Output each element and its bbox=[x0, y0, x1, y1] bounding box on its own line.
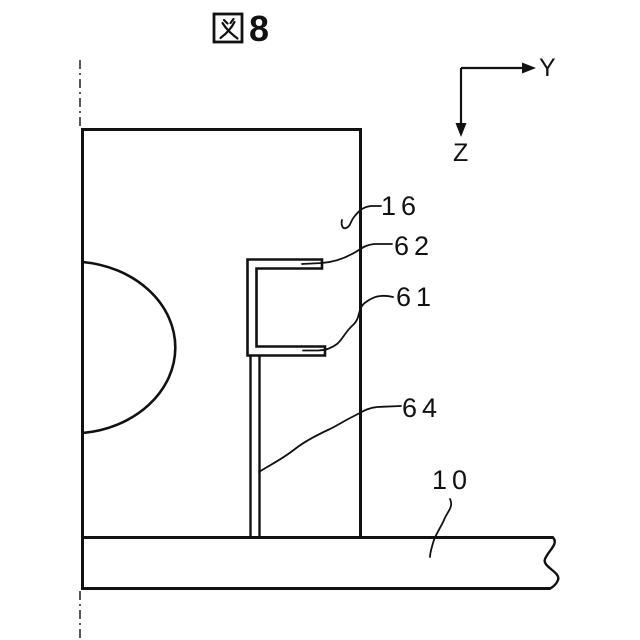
y-axis-label: Y bbox=[539, 54, 556, 82]
y-axis-arrow bbox=[461, 63, 536, 74]
ref-label-62: 62 bbox=[394, 231, 434, 261]
ref-label-61: 61 bbox=[396, 282, 436, 312]
kanji-zu-glyph bbox=[214, 14, 242, 42]
y-arrowhead-icon bbox=[522, 63, 536, 74]
leader-line-61 bbox=[303, 296, 393, 351]
z-axis-arrow bbox=[456, 68, 467, 137]
figure-drawing: 8 Y Z bbox=[0, 0, 640, 640]
semicircle-recess bbox=[83, 262, 176, 433]
base-break-edge bbox=[545, 538, 559, 589]
leader-line-64 bbox=[259, 406, 401, 472]
ref-label-10: 10 bbox=[432, 465, 472, 495]
patent-figure-canvas: 8 Y Z bbox=[0, 0, 640, 640]
z-arrowhead-icon bbox=[456, 123, 467, 137]
ref-label-64: 64 bbox=[402, 393, 442, 423]
axis-indicator: Y Z bbox=[453, 54, 556, 167]
z-axis-label: Z bbox=[453, 139, 468, 167]
support-plate bbox=[251, 356, 260, 536]
figure-number: 8 bbox=[249, 8, 269, 49]
ref-label-16: 16 bbox=[381, 191, 421, 221]
channel-bracket bbox=[248, 260, 326, 356]
figure-title: 8 bbox=[214, 8, 269, 49]
leader-line-10 bbox=[430, 499, 451, 557]
leader-line-62 bbox=[302, 244, 392, 264]
housing-outline bbox=[83, 130, 361, 538]
base-plate bbox=[83, 538, 559, 589]
